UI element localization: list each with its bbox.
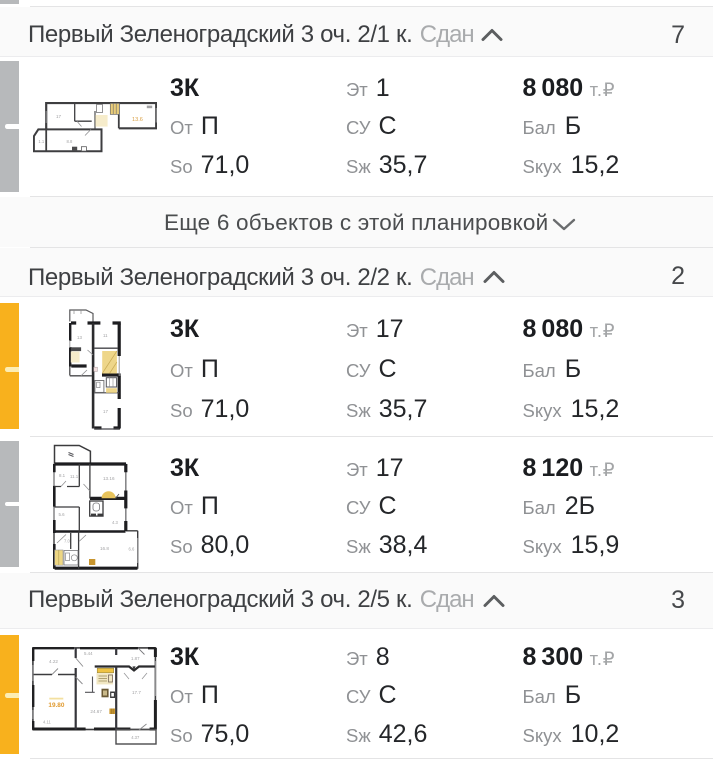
svg-text:8.1: 8.1 [59,473,66,478]
svg-text:17.7: 17.7 [132,690,141,695]
svg-text:4.3: 4.3 [112,520,118,525]
svg-text:17: 17 [103,409,108,414]
svg-text:1.1: 1.1 [38,139,44,144]
svg-text:19.80: 19.80 [48,702,64,709]
svg-text:4.11: 4.11 [43,720,52,725]
svg-text:13.6: 13.6 [132,117,143,123]
svg-text:8.8: 8.8 [67,139,73,144]
svg-text:17: 17 [56,114,62,119]
svg-text:7.0: 7.0 [64,539,70,544]
svg-text:4.22: 4.22 [49,659,58,664]
svg-text:6.6: 6.6 [128,547,134,552]
svg-text:4.37: 4.37 [131,735,140,740]
svg-text:24.67: 24.67 [90,709,102,714]
svg-text:11: 11 [103,333,108,338]
svg-text:5.44: 5.44 [84,651,93,656]
svg-text:11.1: 11.1 [70,474,79,479]
svg-text:13.16: 13.16 [103,476,115,481]
svg-text:5.6: 5.6 [58,512,65,517]
svg-text:16.8: 16.8 [100,546,109,551]
svg-text:1.87: 1.87 [131,656,140,661]
svg-text:13: 13 [77,335,82,340]
